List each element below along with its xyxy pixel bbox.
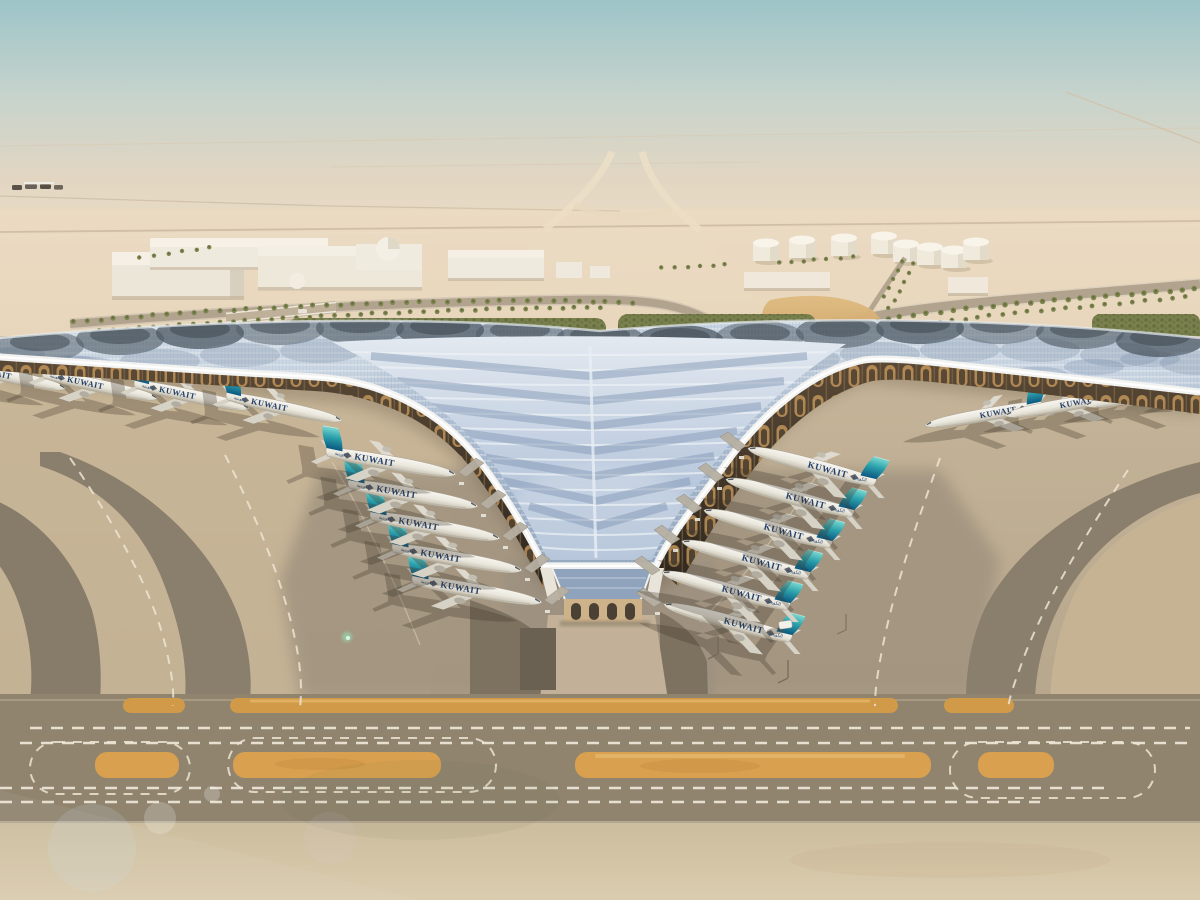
sky [0, 0, 1200, 238]
runway-strip-upper [123, 698, 1014, 713]
airport-rendering: KUWAITالكويتيةKUWAITالكويتيةKUWAITالكويت… [0, 0, 1200, 900]
rendering-canvas: KUWAITالكويتيةKUWAITالكويتيةKUWAITالكويت… [0, 0, 1200, 900]
